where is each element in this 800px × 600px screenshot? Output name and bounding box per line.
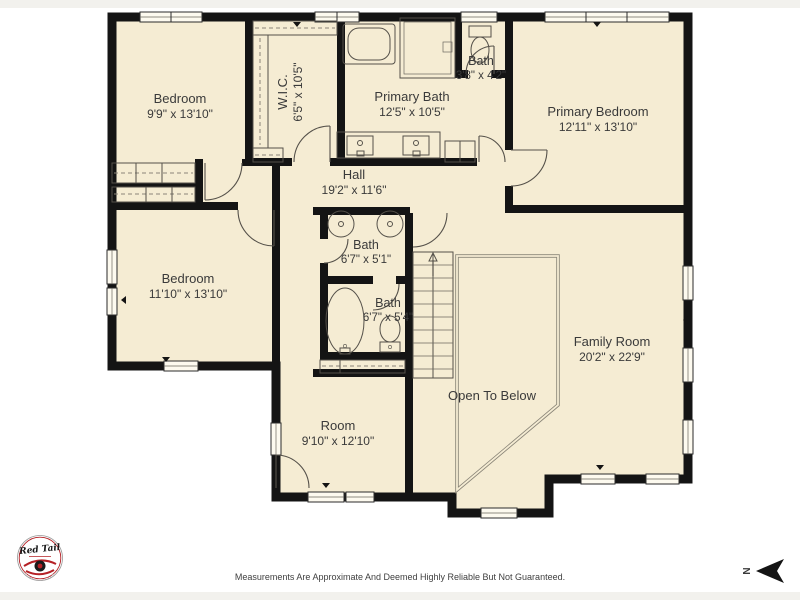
svg-text:6'5" x 10'5": 6'5" x 10'5" xyxy=(291,62,305,121)
svg-text:Bath: Bath xyxy=(375,296,401,310)
window xyxy=(164,361,198,371)
window xyxy=(107,288,117,315)
svg-text:Bath: Bath xyxy=(468,54,494,68)
svg-text:6'7" x 5'4": 6'7" x 5'4" xyxy=(363,312,413,324)
svg-text:Bedroom: Bedroom xyxy=(154,91,207,106)
window xyxy=(646,474,679,484)
svg-text:Bedroom: Bedroom xyxy=(162,271,215,286)
north-arrow-icon: N xyxy=(742,559,784,583)
window xyxy=(683,266,693,300)
room-label-open-to-below: Open To Below xyxy=(448,388,537,403)
footer-disclaimer: Measurements Are Approximate And Deemed … xyxy=(235,572,565,582)
window xyxy=(581,474,615,484)
window xyxy=(107,250,117,284)
window xyxy=(271,423,281,455)
floor-plan-page: Bedroom 9'9" x 13'10" W.I.C. 6'5" x 10'5… xyxy=(0,0,800,600)
window xyxy=(308,492,344,502)
svg-text:12'5" x 10'5": 12'5" x 10'5" xyxy=(379,105,445,119)
svg-text:Primary Bath: Primary Bath xyxy=(374,89,449,104)
window xyxy=(461,12,497,22)
svg-text:Room: Room xyxy=(321,418,356,433)
north-label: N xyxy=(742,567,753,574)
floor-plan-drawing: Bedroom 9'9" x 13'10" W.I.C. 6'5" x 10'5… xyxy=(0,0,800,600)
svg-text:Hall: Hall xyxy=(343,167,366,182)
window xyxy=(545,12,669,22)
svg-text:Open To Below: Open To Below xyxy=(448,388,537,403)
svg-text:W.I.C.: W.I.C. xyxy=(275,74,290,109)
svg-text:12'11" x 13'10": 12'11" x 13'10" xyxy=(559,120,637,134)
brand-logo: Red Tail xyxy=(18,536,63,581)
svg-text:3'8" x 4'2": 3'8" x 4'2" xyxy=(456,70,506,82)
window xyxy=(683,348,693,382)
svg-text:6'7" x 5'1": 6'7" x 5'1" xyxy=(341,254,391,266)
bottom-border-strip xyxy=(0,592,800,600)
window xyxy=(346,492,374,502)
window xyxy=(481,508,517,518)
svg-text:9'9" x 13'10": 9'9" x 13'10" xyxy=(147,107,213,121)
svg-text:20'2" x 22'9": 20'2" x 22'9" xyxy=(579,350,645,364)
svg-text:Primary Bedroom: Primary Bedroom xyxy=(547,104,648,119)
svg-text:9'10" x 12'10": 9'10" x 12'10" xyxy=(302,434,375,448)
window xyxy=(683,420,693,454)
svg-text:Family Room: Family Room xyxy=(574,334,651,349)
window xyxy=(140,12,202,22)
svg-text:11'10" x 13'10": 11'10" x 13'10" xyxy=(149,287,227,301)
svg-text:Bath: Bath xyxy=(353,238,379,252)
svg-text:19'2" x 11'6": 19'2" x 11'6" xyxy=(322,183,387,197)
top-border-strip xyxy=(0,0,800,8)
